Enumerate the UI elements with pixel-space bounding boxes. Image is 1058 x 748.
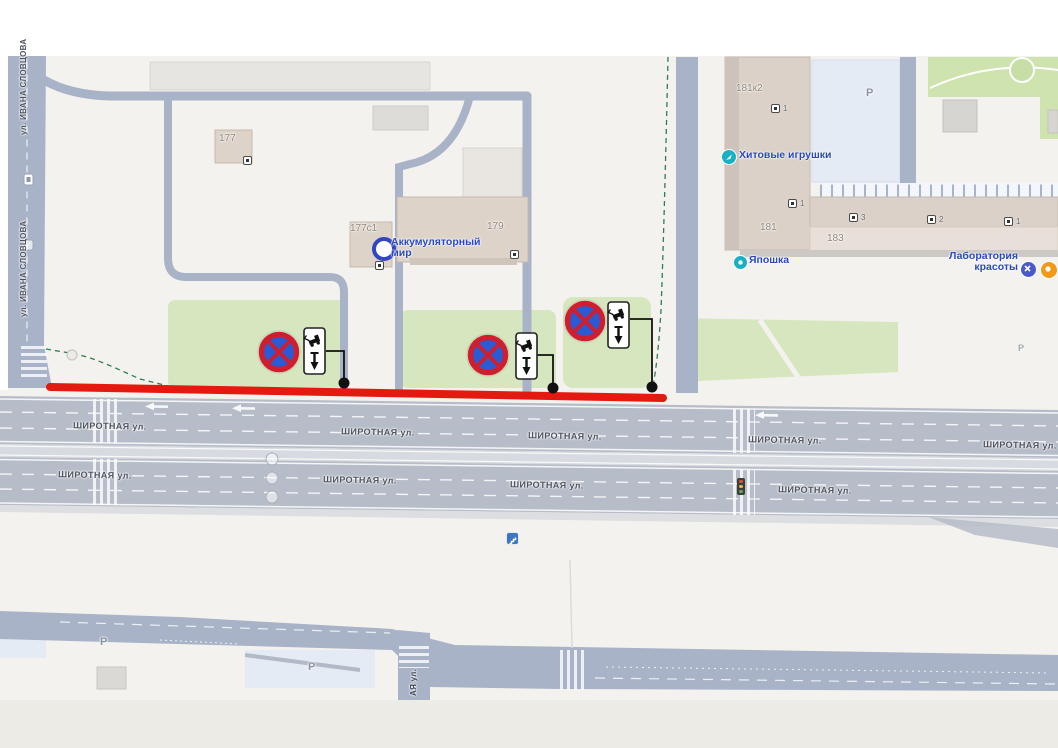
underpass-icon (506, 532, 519, 545)
poi-lab-icon[interactable] (1020, 261, 1037, 278)
parking-label-3: Р (100, 636, 107, 648)
entrance-marker (1004, 217, 1013, 226)
street-label-shirotnaya-5: ШИРОТНАЯ ул. (983, 439, 1057, 450)
poi-yaposhka-icon[interactable] (733, 255, 748, 270)
street-label-shirotnaya-3: ШИРОТНАЯ ул. (528, 430, 602, 441)
street-label-shirotnaya-6: ШИРОТНАЯ ул. (58, 469, 132, 480)
entrance-marker (927, 215, 936, 224)
street-label-shirotnaya-9: ШИРОТНАЯ ул. (778, 484, 852, 495)
no-stopping-sign-1[interactable] (258, 331, 300, 373)
poi-toys-icon[interactable] (721, 149, 737, 165)
entrance-number: 3 (861, 213, 865, 222)
poi-yaposhka-label[interactable]: Япошка (749, 255, 789, 266)
building-label-183: 183 (827, 233, 844, 244)
street-label-shirotnaya-2: ШИРОТНАЯ ул. (341, 426, 415, 437)
poi-toys-label[interactable]: Хитовые игрушки (739, 150, 831, 161)
entrance-marker (510, 250, 519, 259)
building-label-177: 177 (219, 133, 236, 144)
entrance-marker (243, 156, 252, 165)
map-canvas[interactable]: ШИРОТНАЯ ул. ШИРОТНАЯ ул. ШИРОТНАЯ ул. Ш… (0, 0, 1058, 748)
no-stopping-sign-2[interactable] (467, 334, 509, 376)
traffic-light-icon (737, 478, 745, 495)
tow-away-plate-2[interactable] (515, 332, 538, 385)
building-label-177s1: 177с1 (350, 223, 377, 234)
street-label-shirotnaya-8: ШИРОТНАЯ ул. (510, 479, 584, 490)
poi-orange-icon[interactable] (1040, 261, 1058, 279)
poi-battery-line2: мир (391, 247, 412, 259)
parking-label-4: Р (308, 661, 315, 673)
entrance-number: 1 (1016, 217, 1020, 226)
entrance-marker (771, 104, 780, 113)
boundary-node (67, 350, 77, 360)
poi-battery-label[interactable]: Аккумуляторный мир (391, 237, 481, 259)
street-label-cross-partial: АЯ ул. (409, 669, 418, 696)
parking-label-1: Р (866, 87, 873, 99)
poi-lab-label[interactable]: Лаборатория красоты (940, 251, 1018, 273)
poi-lab-line2: красоты (974, 261, 1018, 273)
street-label-shirotnaya-1: ШИРОТНАЯ ул. (73, 420, 147, 431)
tow-away-plate-3[interactable] (607, 301, 630, 354)
no-stopping-sign-3[interactable] (564, 300, 606, 342)
entrance-number: 1 (800, 199, 804, 208)
street-label-ivana-slovtsova-2: ул. ИВАНА СЛОВЦОВА (19, 221, 28, 317)
entrance-number: 1 (783, 104, 787, 113)
entrance-marker (788, 199, 797, 208)
street-label-shirotnaya-4: ШИРОТНАЯ ул. (748, 434, 822, 445)
building-label-181k2: 181к2 (736, 83, 763, 94)
street-label-shirotnaya-7: ШИРОТНАЯ ул. (323, 474, 397, 485)
parking-label-2: Р (1018, 343, 1024, 353)
tow-away-plate-1[interactable] (303, 327, 326, 380)
entrance-marker (849, 213, 858, 222)
building-label-179: 179 (487, 221, 504, 232)
street-label-ivana-slovtsova-1: ул. ИВАНА СЛОВЦОВА (19, 39, 28, 135)
entrance-marker (375, 261, 384, 270)
entrance-number: 2 (939, 215, 943, 224)
building-label-181: 181 (760, 222, 777, 233)
